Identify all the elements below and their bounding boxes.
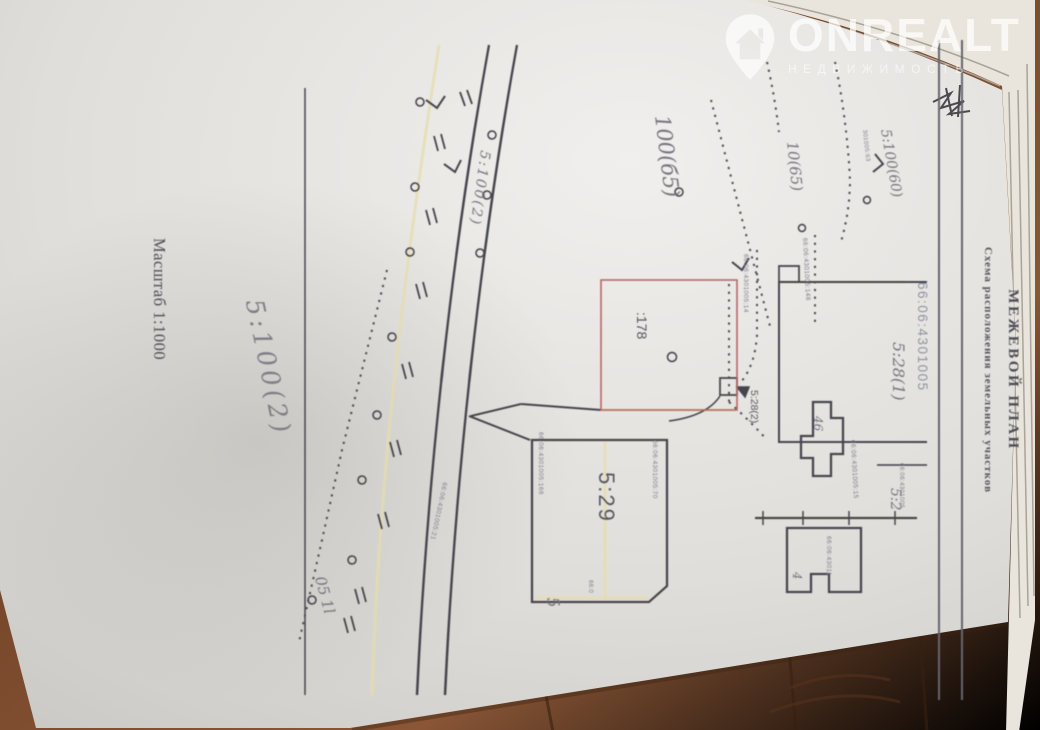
document-title: МЕЖЕВОЙ ПЛАН xyxy=(1004,90,1021,650)
faded-copy-lines xyxy=(372,45,905,695)
watermark-texts: ONREALT НЕДВИЖИМОСТЬ xyxy=(788,12,1021,76)
cadastral-number-63: 301005:63 xyxy=(861,130,870,163)
watermark: ONREALT НЕДВИЖИМОСТЬ xyxy=(722,12,1021,84)
watermark-brand: ONREALT xyxy=(788,12,1021,58)
cadastral-number-70: 66:06:4301005:70 xyxy=(651,440,658,499)
parcel-label-5-28-1: 5:28(1) xyxy=(889,342,908,401)
building-46-outline xyxy=(801,402,843,476)
highlighted-parcel-178-outline xyxy=(601,280,737,410)
road-edge-2 xyxy=(417,45,489,695)
cadastral-map: 5:100(60) 301005:63 5:28(1) 5:2 66:06:43… xyxy=(247,50,907,690)
parcel-label-178: :178 xyxy=(634,312,650,339)
parcel-label-100-b5: 100(б5) xyxy=(650,114,684,199)
building-4-outline xyxy=(787,528,861,592)
parcel-label-10-65: 10(65) xyxy=(783,141,806,193)
cadastral-number-14: 66:06:4301005:14 xyxy=(742,254,749,313)
cadastral-number-148: 66:06:4301005:148 xyxy=(801,238,811,301)
cadastral-number-43011: 66:06:43011 xyxy=(825,536,832,576)
cadastral-number-quarter-small: 66:06:4301005 xyxy=(898,463,904,509)
handwritten-label-05: 05 1l xyxy=(311,574,338,616)
house-location-pin-icon xyxy=(722,12,778,84)
scale-label: Масштаб 1:1000 xyxy=(149,238,169,360)
building-label-46: 46 xyxy=(811,415,825,432)
header-rule-bottom xyxy=(938,40,940,700)
cadastral-number-66: 66:0 xyxy=(587,580,593,594)
watermark-tagline: НЕДВИЖИМОСТЬ xyxy=(788,62,1021,76)
parcel-label-5-29: 5:29 xyxy=(594,472,619,523)
header-rule-top xyxy=(961,40,963,700)
cadastral-number-166: 66:06:4301005:166 xyxy=(537,432,544,495)
cadastral-quarter-number: 66:06:4301005 xyxy=(915,282,930,392)
road-edge-1 xyxy=(445,45,517,695)
cadastral-number-15: 66:06:4301005:15 xyxy=(849,440,859,499)
parcel-label-5-28-2: 5:28(2) xyxy=(748,390,760,423)
parcel-label-5: 5 xyxy=(543,596,563,609)
dotted-boundaries xyxy=(299,62,850,642)
building-label-4: 4 xyxy=(790,571,804,580)
photo-of-survey-plan: МЕЖЕВОЙ ПЛАН Схема расположения земельны… xyxy=(0,0,1040,730)
survey-document: МЕЖЕВОЙ ПЛАН Схема расположения земельны… xyxy=(125,50,1025,690)
document-subtitle: Схема расположения земельных участков xyxy=(982,90,994,650)
